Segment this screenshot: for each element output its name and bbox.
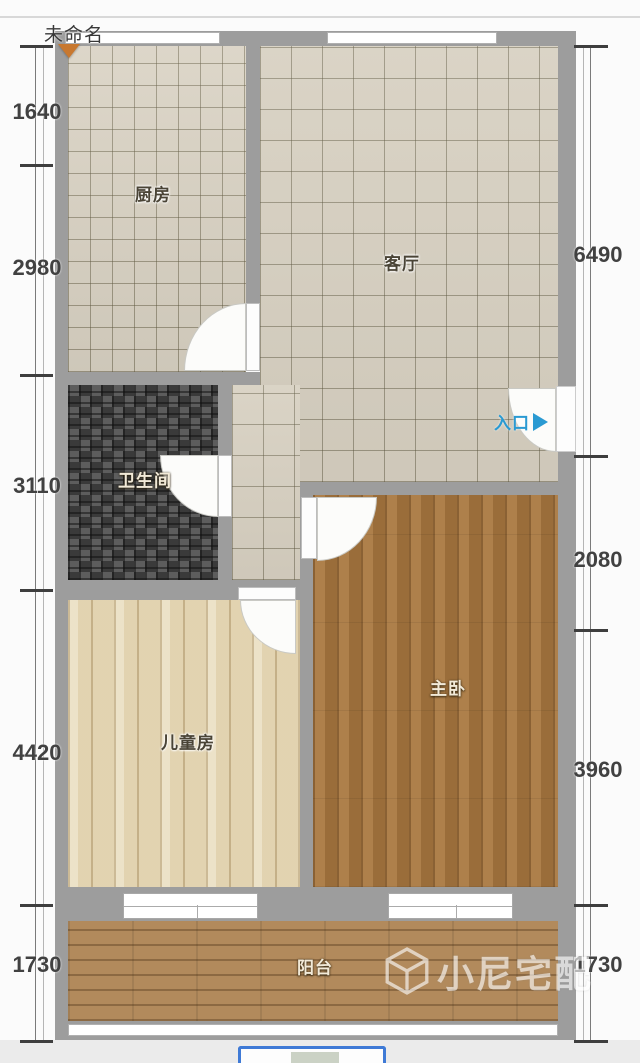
kids-door-panel[interactable]	[238, 587, 296, 600]
dim-tick	[20, 589, 53, 592]
dim-right-3: 3960	[574, 757, 623, 783]
wall-master-top	[300, 482, 576, 495]
dim-left-3: 3110	[13, 473, 61, 499]
dim-right-2: 2080	[574, 547, 623, 573]
dim-tick	[20, 374, 53, 377]
location-marker-icon	[58, 44, 80, 58]
top-rule-line	[0, 16, 640, 18]
kitchen-label: 厨房	[135, 181, 171, 206]
entrance-door-opening[interactable]	[556, 386, 576, 452]
window-balcony-bottom[interactable]	[68, 1024, 558, 1036]
master-bedroom-label: 主卧	[430, 675, 466, 700]
kids-room-label: 儿童房	[161, 729, 215, 754]
button-content-preview	[291, 1052, 339, 1063]
dim-tick	[574, 629, 608, 632]
bathroom-label: 卫生间	[118, 467, 172, 492]
entrance-label: 入口	[494, 409, 530, 434]
dim-tick	[574, 455, 608, 458]
bottom-action-button[interactable]	[238, 1046, 386, 1063]
bathroom-door-panel[interactable]	[218, 455, 232, 517]
watermark-text: 小尼宅配	[437, 944, 593, 998]
balcony-label: 阳台	[297, 954, 333, 979]
dim-right-1: 6490	[574, 242, 623, 268]
dim-line-left	[35, 46, 36, 1042]
entrance-tag: 入口	[494, 409, 548, 434]
wall-kitchen-bathroom	[55, 372, 260, 385]
dim-tick	[574, 904, 608, 907]
dim-line-right-inner	[583, 46, 584, 1042]
dim-line-right	[590, 46, 591, 1042]
dim-tick	[20, 164, 53, 167]
cube-logo-icon	[385, 946, 429, 996]
entrance-arrow-icon	[533, 413, 548, 431]
dim-tick	[574, 1040, 608, 1043]
living-room-label: 客厅	[384, 250, 420, 275]
kitchen-door-panel[interactable]	[246, 303, 260, 371]
dim-left-4: 4420	[13, 740, 62, 766]
dim-tick	[20, 904, 53, 907]
window-top-living[interactable]	[327, 32, 497, 44]
dim-left-2: 2980	[13, 255, 62, 281]
dim-tick	[20, 45, 53, 48]
dim-line-left-inner	[43, 46, 44, 1042]
dim-left-5: 1730	[13, 952, 62, 978]
master-door-panel[interactable]	[301, 497, 317, 559]
sliding-door-master-balcony[interactable]	[388, 893, 513, 919]
dim-tick	[20, 1040, 53, 1043]
floor-plan-screen: 厨房 客厅 卫生间 主卧 儿童房 阳台 入口 未命名 1640 2980 311…	[0, 0, 640, 1063]
dim-left-1: 1640	[13, 99, 62, 125]
sliding-door-kids-balcony[interactable]	[123, 893, 258, 919]
wall-kitchen-right	[246, 31, 260, 305]
dim-tick	[574, 45, 608, 48]
hallway-floor[interactable]	[232, 385, 300, 580]
plan-name[interactable]: 未命名	[44, 20, 104, 47]
watermark: 小尼宅配	[385, 944, 593, 998]
